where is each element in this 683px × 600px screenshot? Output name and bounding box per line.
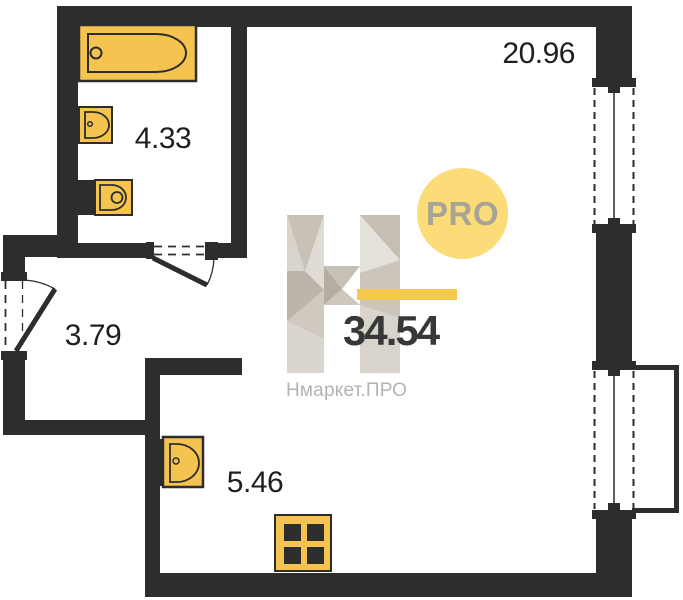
kitchen-area-label: 5.46 xyxy=(223,468,287,498)
window-upper xyxy=(592,78,636,233)
floor-plan: 20.96 4.33 3.79 5.46 PRO 34.54 Нмаркет.П… xyxy=(0,0,683,600)
brand-name-label: Нмаркет.ПРО xyxy=(286,381,407,400)
pro-badge: PRO xyxy=(417,168,508,259)
kitchen-sink-icon xyxy=(158,437,203,487)
accent-bar xyxy=(357,289,457,300)
balcony-outline xyxy=(632,365,679,513)
total-area-label: 34.54 xyxy=(343,310,438,352)
toilet-icon xyxy=(78,180,132,215)
window-lower xyxy=(592,361,636,519)
bathroom-door xyxy=(153,247,214,286)
pro-badge-label: PRO xyxy=(426,195,499,233)
entrance-door xyxy=(6,280,56,351)
bathtub-icon xyxy=(79,25,196,81)
living-room-area-label: 20.96 xyxy=(475,39,575,69)
stove-icon xyxy=(275,515,331,571)
bathroom-area-label: 4.33 xyxy=(133,124,193,154)
floor-plan-drawing xyxy=(0,0,683,600)
hallway-area-label: 3.79 xyxy=(62,321,124,351)
bathroom-sink-icon xyxy=(79,107,112,143)
